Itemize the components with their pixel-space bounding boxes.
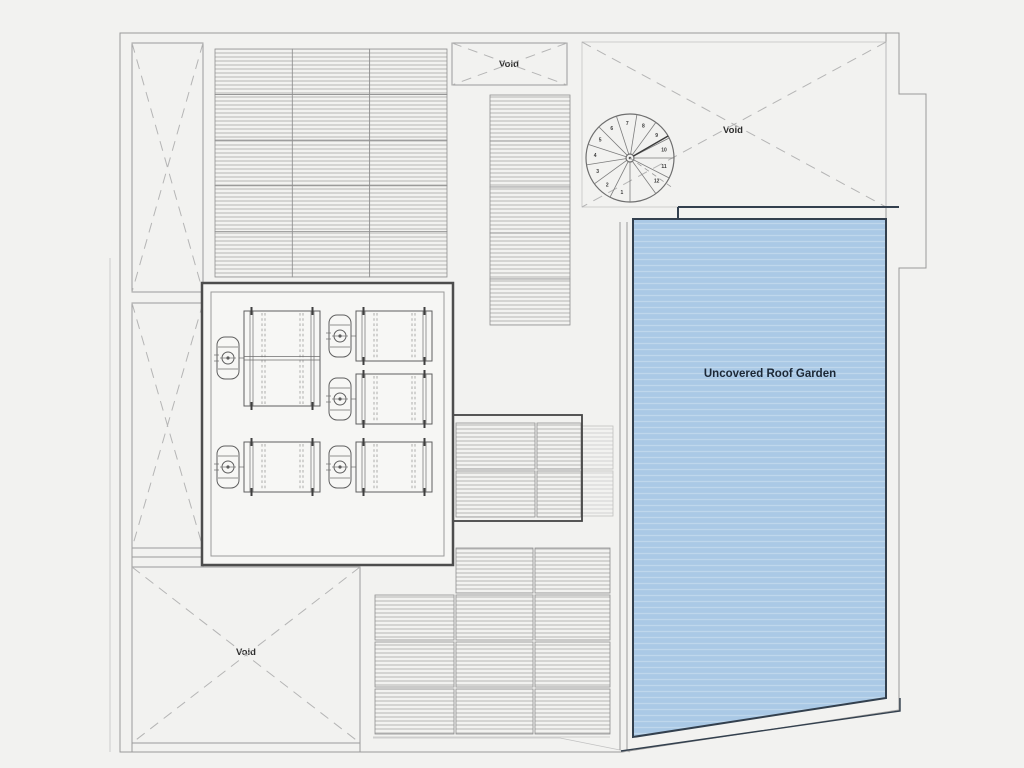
stair-step-number: 2 [606, 182, 609, 188]
louver-grid-bottom [375, 548, 610, 734]
stair-tread-line [610, 162, 628, 198]
void-label-top-right: Void [723, 125, 743, 136]
pump-unit [326, 370, 432, 428]
louver-panel [456, 548, 533, 593]
louver-panel [456, 471, 535, 517]
louver-grid-top [215, 49, 447, 277]
spiral-staircase: 123456789101112 [586, 114, 674, 202]
louver-panel [537, 471, 581, 517]
void-label-bottom-left: Void [236, 647, 256, 658]
void-shaft-top-left [132, 43, 203, 567]
roof-garden: Uncovered Roof Garden [620, 207, 900, 751]
pump-unit [214, 438, 320, 496]
pump-unit [326, 307, 432, 365]
louver-panel [490, 141, 570, 187]
louver-strip-center [490, 95, 570, 325]
stair-step-number: 11 [661, 164, 667, 170]
louver-panel [375, 689, 454, 734]
stair-tread-line [587, 159, 627, 165]
louver-panel [490, 187, 570, 233]
stair-step-number: 4 [594, 153, 597, 159]
louver-panel [370, 49, 447, 95]
roof-plan-canvas: Void Void Void Uncovered Roof Garden [0, 0, 1024, 768]
stair-step-number: 6 [610, 126, 613, 132]
louver-panel [456, 642, 533, 687]
stair-tread-line [594, 160, 626, 184]
louver-panel [215, 186, 292, 232]
louver-panel [370, 140, 447, 186]
louver-panel [215, 231, 292, 277]
louver-panel [370, 231, 447, 277]
louver-panel [582, 426, 613, 469]
louver-panel [490, 233, 570, 279]
louver-grid-middle [456, 423, 613, 517]
stair-step-number: 8 [642, 123, 645, 129]
stair-tread-line [631, 115, 637, 155]
louver-panel [456, 423, 535, 469]
stair-step-number: 12 [654, 179, 660, 185]
louver-panel [292, 140, 369, 186]
louver-panel [537, 423, 581, 469]
louver-panel [582, 471, 613, 516]
louver-panel [535, 642, 610, 687]
roof-garden-label: Uncovered Roof Garden [704, 368, 836, 380]
stair-step-number: 5 [599, 138, 602, 144]
stair-step-number: 7 [626, 121, 629, 127]
louver-panel [215, 95, 292, 141]
louver-panel [535, 548, 610, 593]
louver-panel [490, 95, 570, 141]
stair-step-number: 3 [596, 169, 599, 175]
louver-panel [292, 186, 369, 232]
louver-panel [292, 231, 369, 277]
right-protrusion-outline [899, 94, 926, 268]
roof-garden-area [633, 219, 886, 737]
louver-panel [456, 689, 533, 734]
louver-panel [456, 595, 533, 640]
louver-panel [370, 186, 447, 232]
louver-panel [375, 642, 454, 687]
louver-panel [215, 49, 292, 95]
louver-panel [490, 279, 570, 325]
louver-panel [215, 140, 292, 186]
plant-room [202, 283, 453, 565]
void-label-top-center: Void [499, 59, 519, 70]
louver-panel [375, 595, 454, 640]
louver-panel [535, 689, 610, 734]
louver-panel [292, 95, 369, 141]
louver-panel [535, 595, 610, 640]
louver-panel [370, 95, 447, 141]
stair-step-number: 10 [661, 148, 667, 154]
pump-unit [326, 438, 432, 496]
stair-tread-line [632, 161, 656, 193]
void-bottom-left: Void [132, 567, 360, 752]
louver-panel [292, 49, 369, 95]
stair-step-number: 9 [655, 133, 658, 139]
roof-plan-page: Void Void Void Uncovered Roof Garden [0, 0, 1024, 768]
stair-step-number: 1 [620, 190, 623, 196]
